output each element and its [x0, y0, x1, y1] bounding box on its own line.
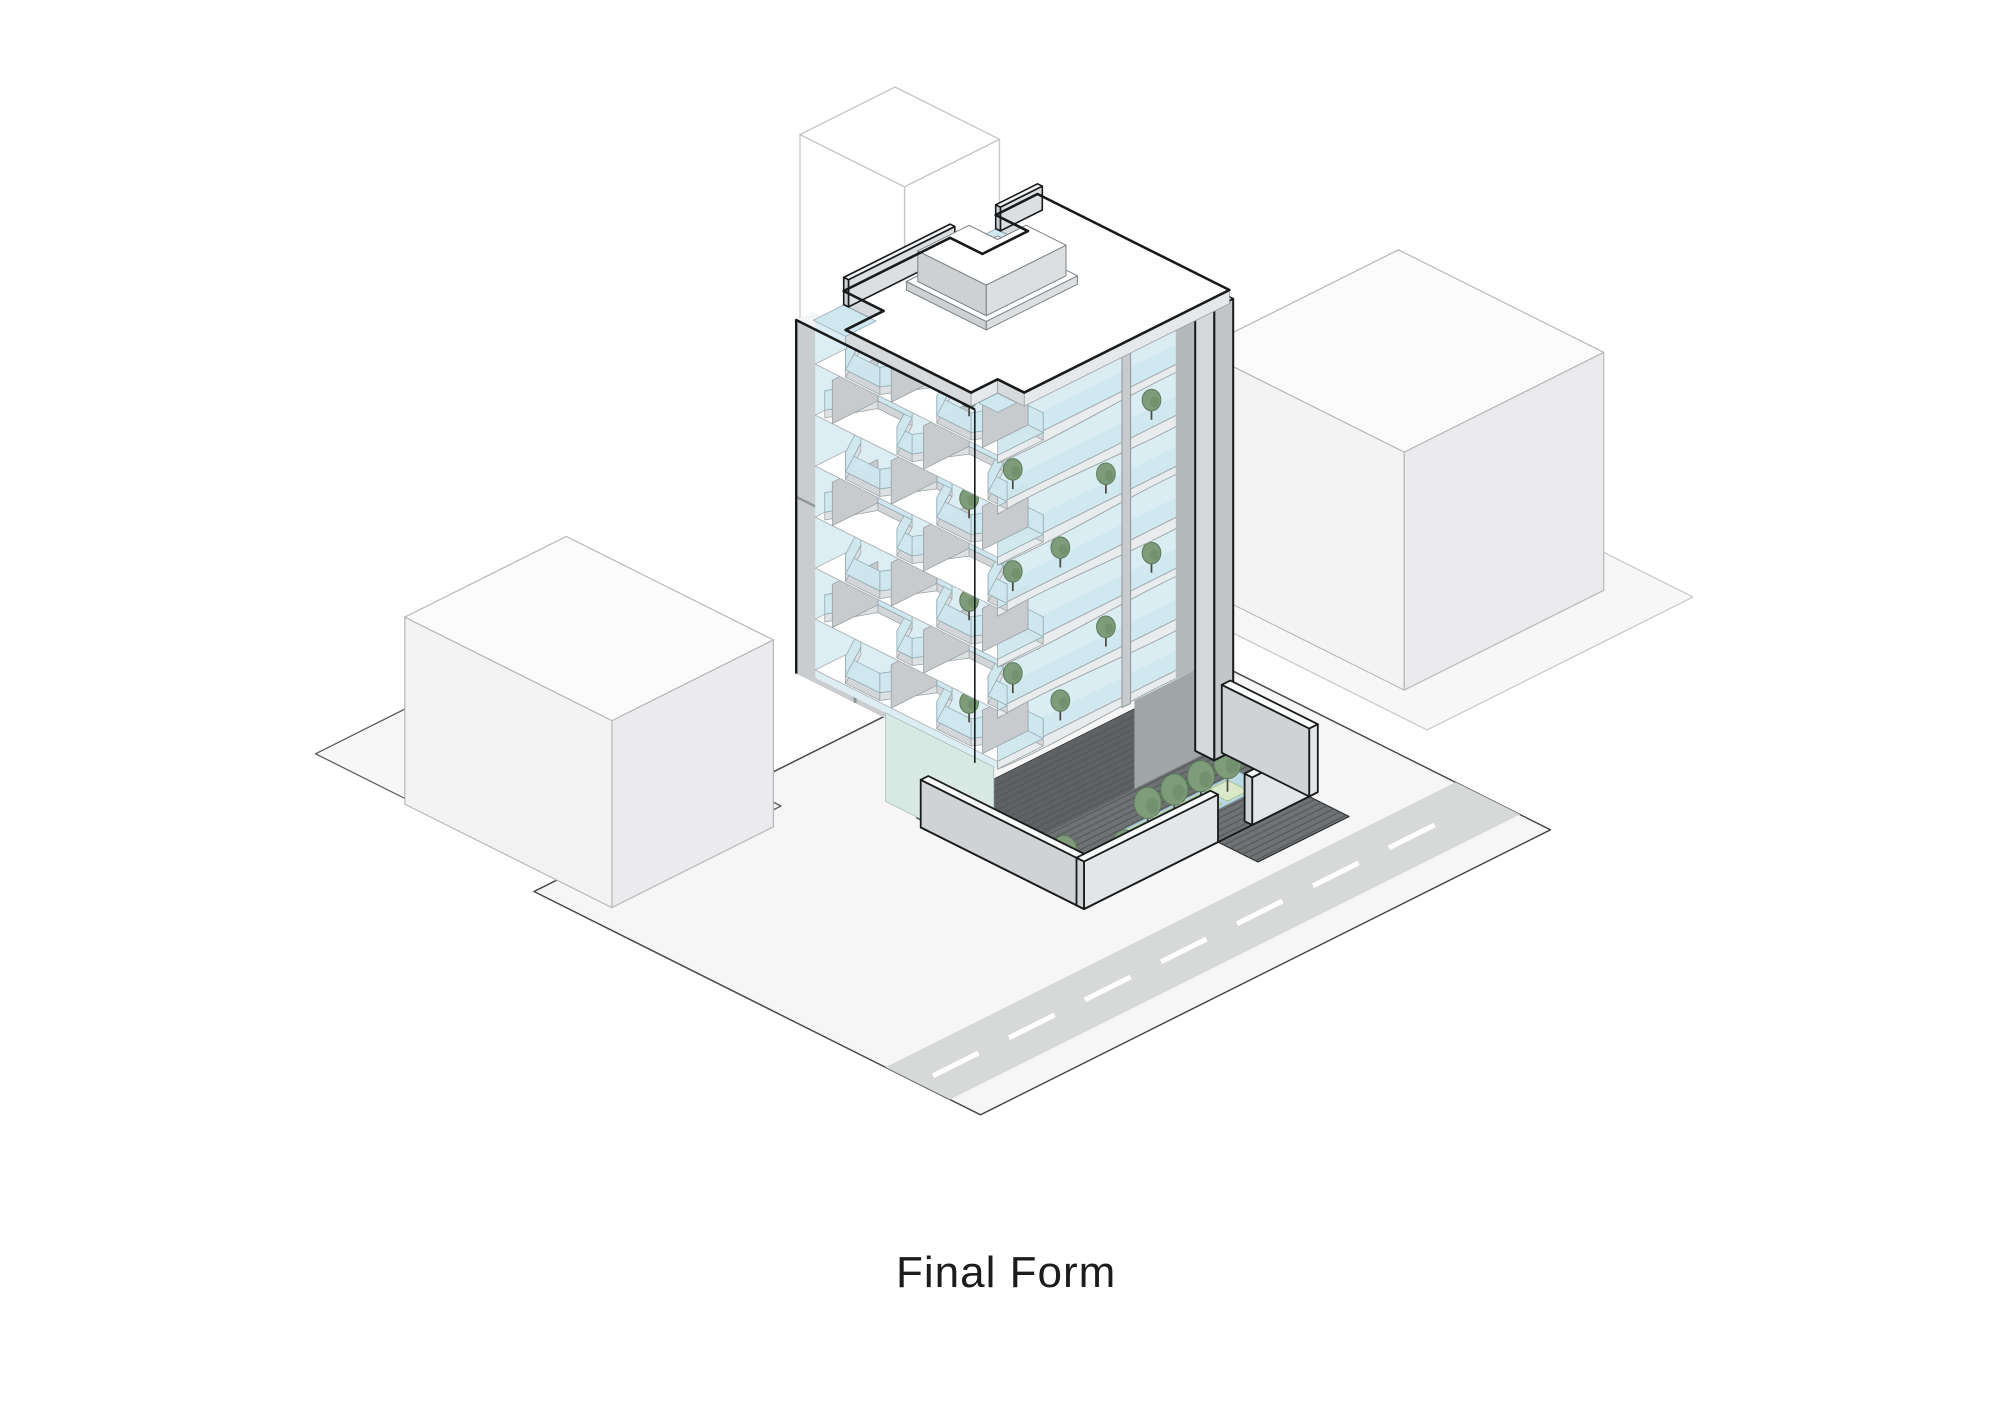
balcony-tree-icon-shade	[1011, 670, 1020, 681]
balcony-tree-icon-shade	[1150, 396, 1159, 407]
diagram-canvas	[0, 0, 2000, 1414]
planter-tree-icon-shade	[1172, 784, 1185, 800]
planter-tree-icon-shade	[1199, 771, 1212, 787]
courtyard-wall-south-right-left-face	[1245, 774, 1253, 825]
balcony-tree-icon-shade	[1011, 466, 1020, 477]
context-building-left	[405, 536, 774, 907]
architecture-diagram: Final Form	[0, 0, 2000, 1414]
balcony-tree-icon-shade	[1059, 544, 1068, 555]
balcony-tree-icon-shade	[1105, 623, 1114, 634]
courtyard-wall-east-right-face	[1309, 724, 1318, 796]
facade-pier	[1122, 346, 1131, 707]
caption: Final Form	[896, 1248, 1116, 1298]
planter-tree-icon-shade	[1146, 798, 1159, 814]
balcony-tree-icon-shade	[1105, 470, 1114, 481]
balcony-tree-icon-shade	[1011, 568, 1020, 579]
balcony-tree-icon-shade	[1150, 549, 1159, 560]
balcony-tree-icon-shade	[1059, 697, 1068, 708]
courtyard-wall-south-left-face	[1077, 858, 1085, 909]
corner-pier-left-face	[1195, 299, 1214, 761]
